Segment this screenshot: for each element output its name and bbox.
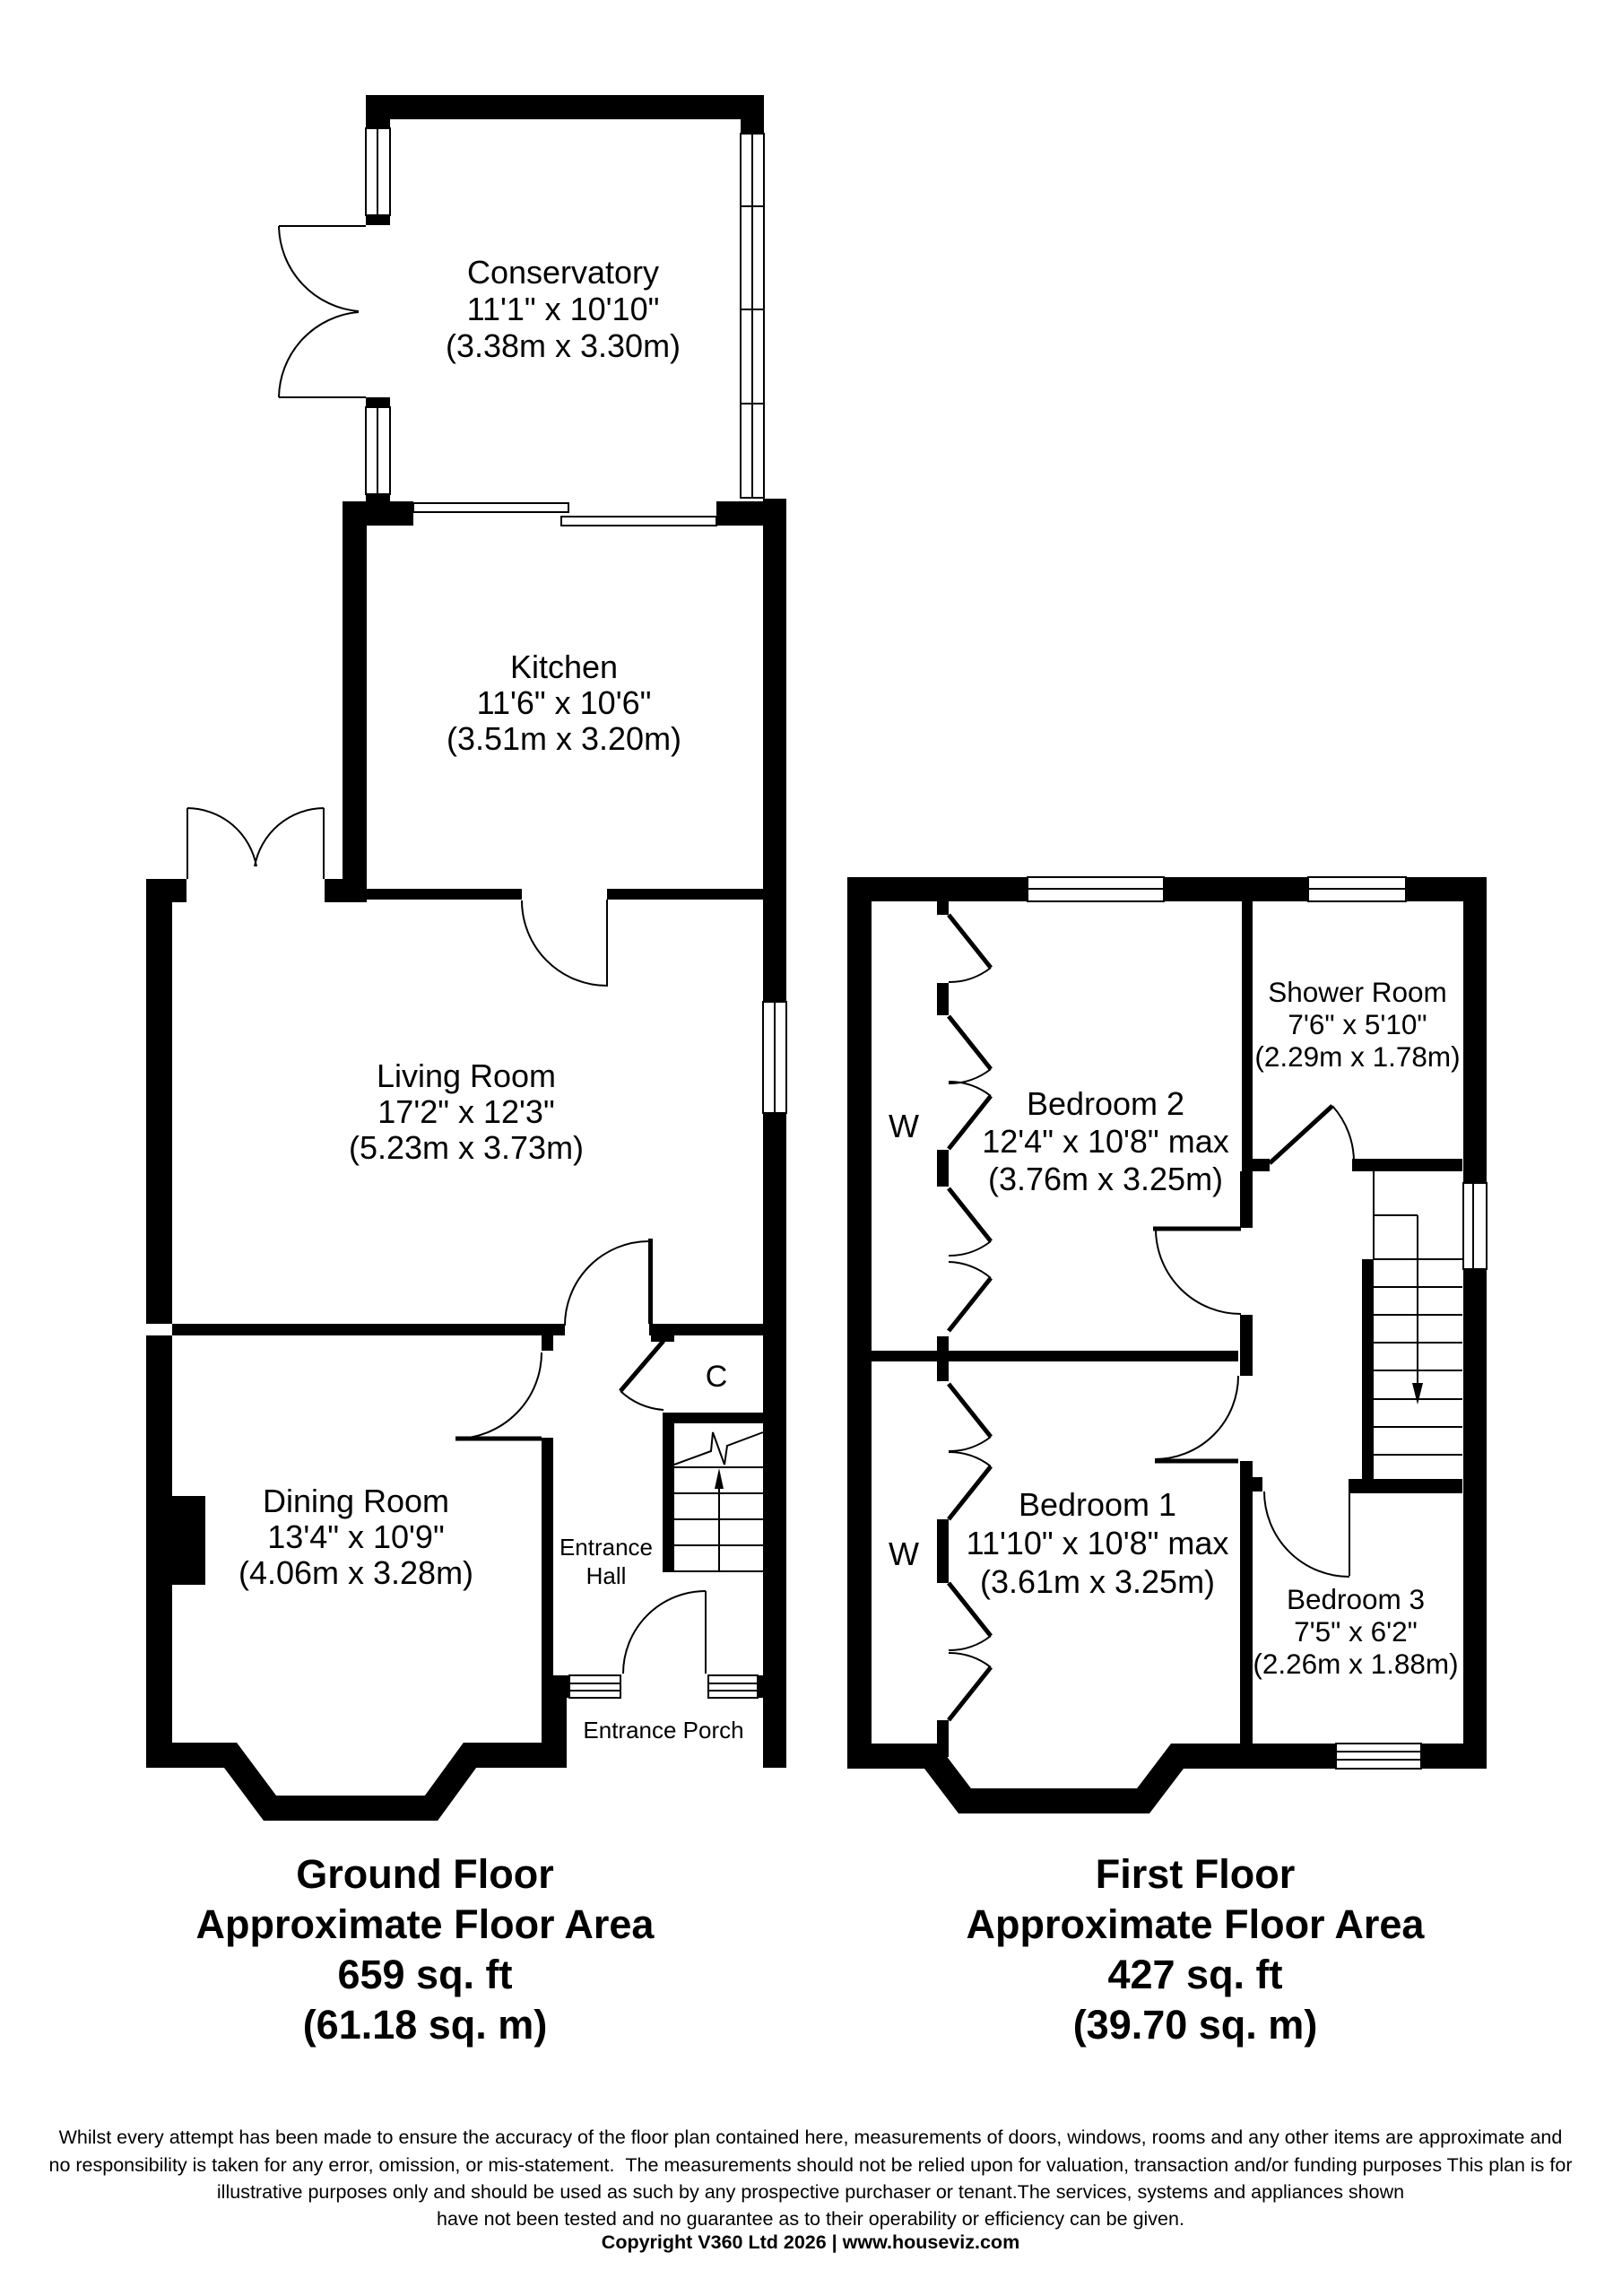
svg-text:Entrance: Entrance bbox=[559, 1534, 653, 1561]
svg-text:Conservatory: Conservatory bbox=[467, 254, 659, 291]
svg-text:Kitchen: Kitchen bbox=[510, 648, 618, 685]
svg-text:13'4" x 10'9": 13'4" x 10'9" bbox=[267, 1518, 444, 1555]
svg-text:Copyright V360 Ltd 2026 | www.: Copyright V360 Ltd 2026 | www.houseviz.c… bbox=[602, 2231, 1019, 2253]
svg-text:427 sq. ft: 427 sq. ft bbox=[1107, 1952, 1282, 1997]
svg-text:(3.38m x 3.30m): (3.38m x 3.30m) bbox=[446, 327, 681, 364]
svg-text:(39.70 sq. m): (39.70 sq. m) bbox=[1073, 2002, 1318, 2048]
svg-text:(5.23m x 3.73m): (5.23m x 3.73m) bbox=[349, 1129, 584, 1166]
svg-text:W: W bbox=[889, 1108, 919, 1144]
svg-text:First Floor: First Floor bbox=[1096, 1851, 1296, 1897]
svg-text:no responsibility is taken for: no responsibility is taken for any error… bbox=[49, 2154, 1573, 2176]
svg-text:Ground Floor: Ground Floor bbox=[296, 1851, 553, 1897]
svg-text:(4.06m x 3.28m): (4.06m x 3.28m) bbox=[239, 1554, 473, 1591]
svg-text:(2.29m x 1.78m): (2.29m x 1.78m) bbox=[1254, 1040, 1460, 1073]
svg-text:659 sq. ft: 659 sq. ft bbox=[337, 1952, 512, 1997]
svg-text:12'4" x 10'8" max: 12'4" x 10'8" max bbox=[982, 1123, 1228, 1160]
svg-text:11'10" x 10'8" max: 11'10" x 10'8" max bbox=[967, 1525, 1229, 1561]
svg-text:Bedroom 1: Bedroom 1 bbox=[1019, 1486, 1176, 1523]
svg-text:Hall: Hall bbox=[586, 1562, 627, 1589]
svg-text:Whilst every attempt has been: Whilst every attempt has been made to en… bbox=[59, 2126, 1563, 2148]
svg-text:11'6" x 10'6": 11'6" x 10'6" bbox=[477, 684, 652, 721]
svg-text:17'2" x 12'3": 17'2" x 12'3" bbox=[377, 1093, 554, 1130]
svg-text:C: C bbox=[706, 1360, 728, 1394]
svg-text:Bedroom 3: Bedroom 3 bbox=[1287, 1583, 1425, 1615]
svg-text:Approximate Floor Area: Approximate Floor Area bbox=[196, 1901, 655, 1947]
svg-text:(2.26m x 1.88m): (2.26m x 1.88m) bbox=[1253, 1648, 1458, 1680]
svg-text:Approximate Floor Area: Approximate Floor Area bbox=[967, 1901, 1426, 1947]
svg-text:Living Room: Living Room bbox=[377, 1057, 556, 1094]
svg-text:illustrative purposes only and: illustrative purposes only and should be… bbox=[217, 2181, 1404, 2203]
svg-text:have not been tested and no gu: have not been tested and no guarantee as… bbox=[437, 2208, 1184, 2230]
svg-text:7'6" x 5'10": 7'6" x 5'10" bbox=[1288, 1008, 1427, 1040]
svg-text:(3.76m x 3.25m): (3.76m x 3.25m) bbox=[988, 1161, 1223, 1197]
svg-text:W: W bbox=[889, 1535, 919, 1572]
svg-text:(61.18 sq. m): (61.18 sq. m) bbox=[303, 2002, 548, 2048]
svg-text:(3.61m x 3.25m): (3.61m x 3.25m) bbox=[980, 1563, 1215, 1600]
svg-text:Entrance Porch: Entrance Porch bbox=[583, 1717, 743, 1744]
svg-text:7'5" x 6'2": 7'5" x 6'2" bbox=[1294, 1615, 1418, 1648]
svg-text:(3.51m x 3.20m): (3.51m x 3.20m) bbox=[447, 720, 681, 757]
svg-text:11'1" x 10'10": 11'1" x 10'10" bbox=[467, 291, 660, 327]
svg-text:Bedroom 2: Bedroom 2 bbox=[1027, 1085, 1184, 1122]
svg-text:Dining Room: Dining Room bbox=[263, 1483, 449, 1519]
svg-text:Shower Room: Shower Room bbox=[1268, 976, 1447, 1008]
